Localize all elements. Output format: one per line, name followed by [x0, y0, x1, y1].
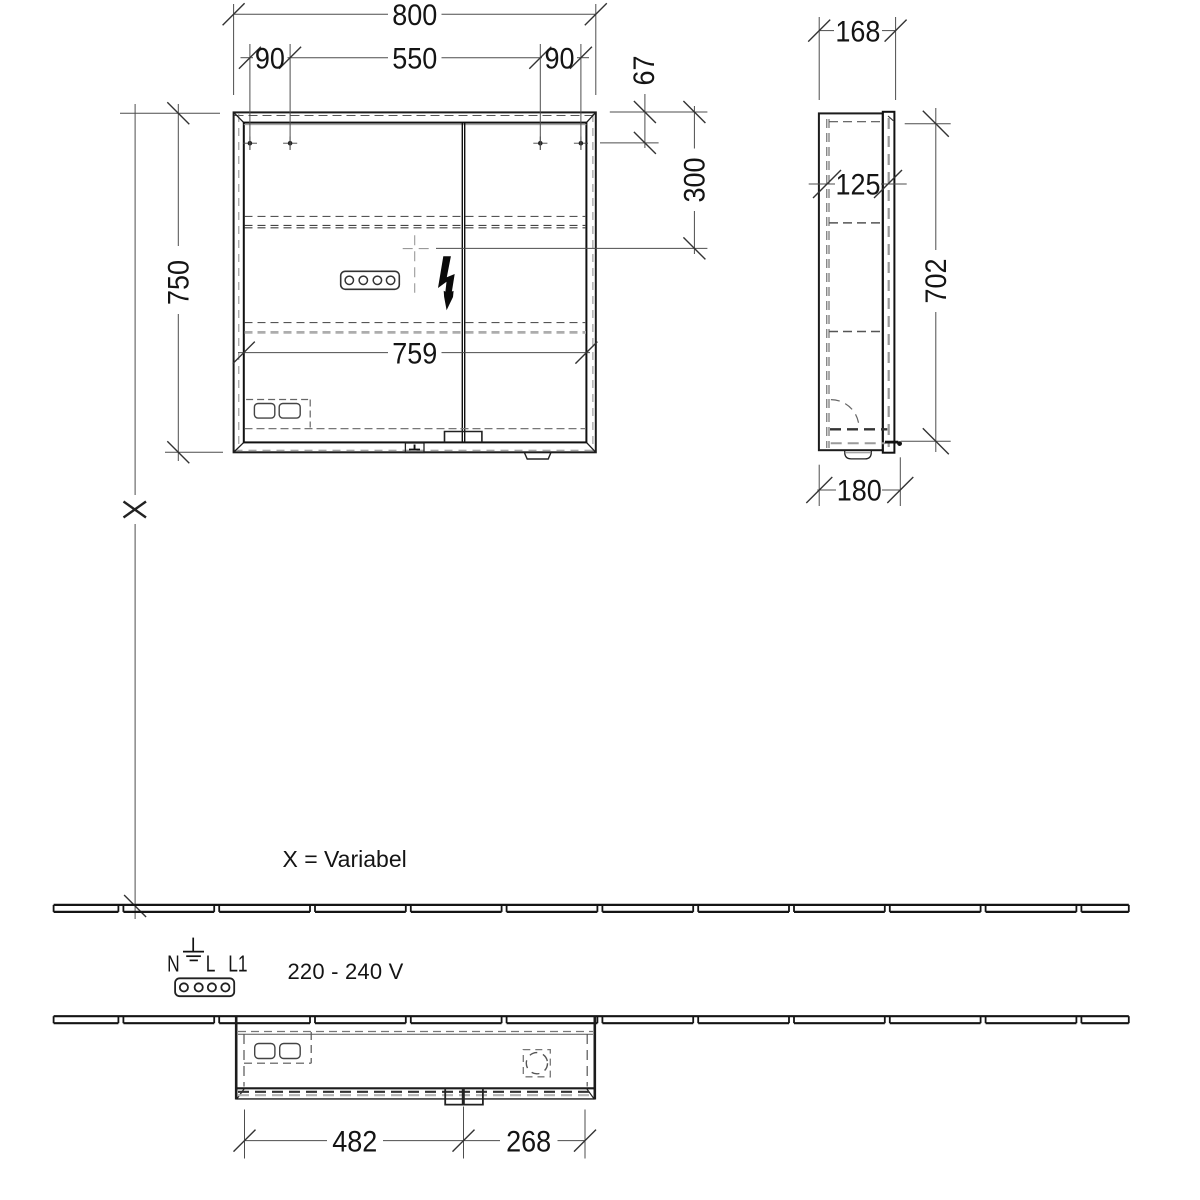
svg-text:550: 550 — [392, 42, 437, 76]
svg-text:125: 125 — [835, 168, 880, 202]
svg-text:750: 750 — [162, 260, 196, 305]
svg-text:X = Variabel: X = Variabel — [283, 846, 407, 872]
svg-text:268: 268 — [506, 1125, 551, 1159]
svg-text:90: 90 — [255, 42, 285, 76]
svg-text:702: 702 — [920, 258, 954, 303]
svg-text:759: 759 — [392, 337, 437, 371]
svg-text:180: 180 — [837, 474, 882, 508]
svg-text:90: 90 — [544, 42, 574, 76]
svg-text:N: N — [167, 951, 180, 977]
svg-text:168: 168 — [835, 15, 880, 49]
svg-text:67: 67 — [628, 55, 662, 85]
svg-text:482: 482 — [332, 1125, 377, 1159]
svg-text:L1: L1 — [228, 951, 247, 977]
svg-text:L: L — [206, 951, 216, 977]
svg-text:220 - 240 V: 220 - 240 V — [288, 959, 404, 984]
svg-text:300: 300 — [678, 157, 712, 202]
svg-text:800: 800 — [392, 0, 437, 32]
